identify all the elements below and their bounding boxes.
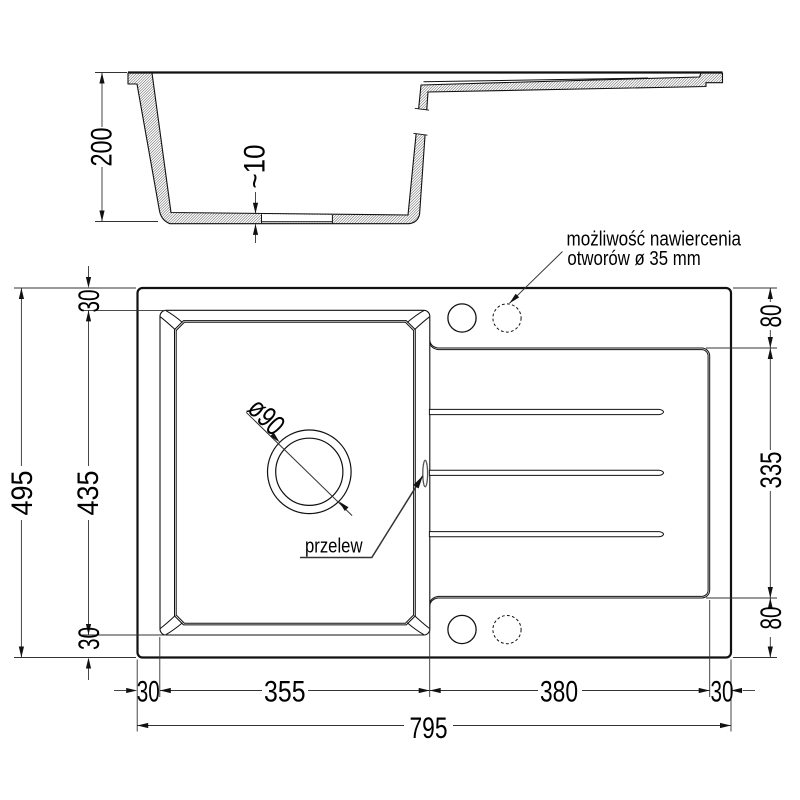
svg-text:30: 30	[73, 627, 106, 650]
svg-text:435: 435	[72, 471, 105, 516]
svg-text:80: 80	[755, 607, 788, 630]
svg-text:ø90: ø90	[241, 392, 291, 442]
svg-text:30: 30	[137, 676, 160, 709]
svg-text:~10: ~10	[238, 145, 271, 189]
svg-text:200: 200	[86, 128, 119, 167]
svg-text:795: 795	[410, 712, 448, 745]
svg-text:80: 80	[755, 305, 788, 328]
svg-text:otworów ø 35 mm: otworów ø 35 mm	[567, 247, 700, 270]
svg-text:495: 495	[6, 471, 39, 516]
svg-text:przelew: przelew	[305, 535, 363, 558]
svg-text:30: 30	[73, 290, 106, 313]
svg-text:355: 355	[264, 676, 306, 709]
svg-text:335: 335	[755, 452, 788, 489]
svg-text:30: 30	[711, 676, 734, 709]
svg-text:380: 380	[540, 676, 578, 709]
